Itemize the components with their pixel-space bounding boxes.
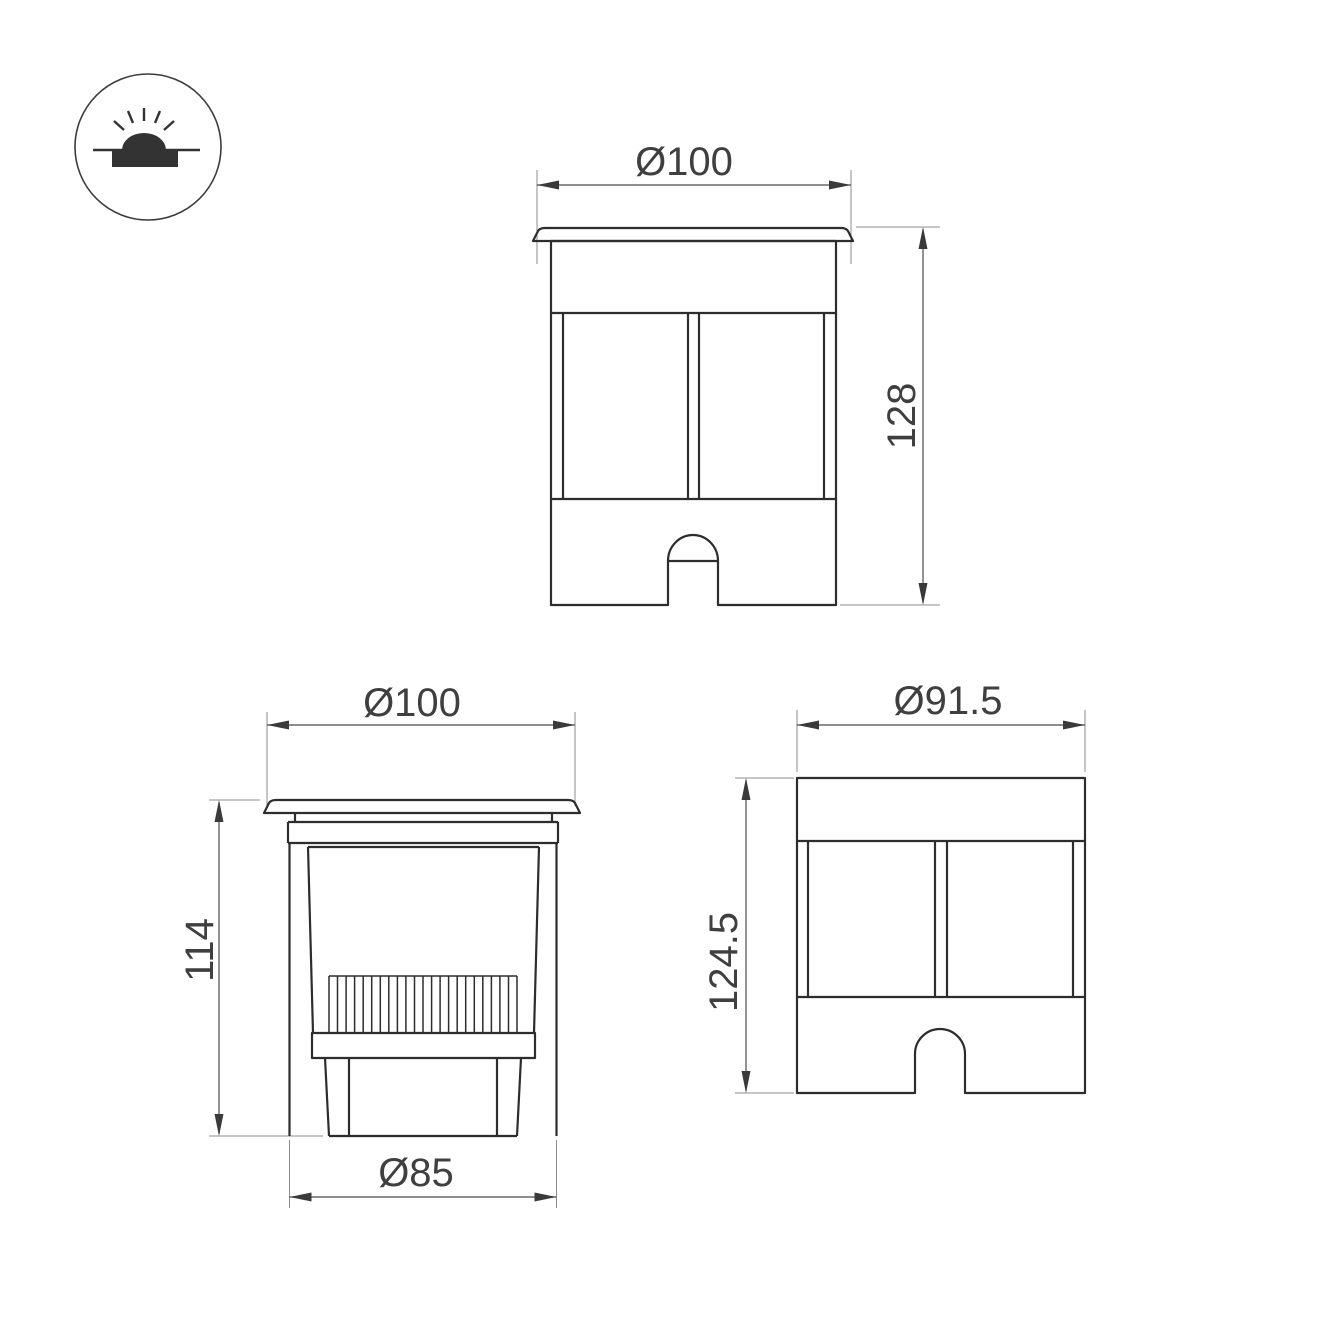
arrow-up — [215, 800, 224, 822]
rear-diameter-label: Ø91.5 — [894, 679, 1003, 723]
arrow-right — [553, 721, 575, 730]
lamp-dome — [122, 133, 166, 150]
arrow-left — [537, 181, 559, 190]
arrow-up — [742, 778, 751, 800]
arrow-left — [797, 721, 819, 730]
front-height-label: 128 — [880, 383, 924, 450]
recessed-ground-light-icon — [75, 74, 221, 220]
rear-window-side-lines — [808, 841, 1073, 997]
front-body — [551, 241, 836, 605]
arrow-down — [215, 1114, 224, 1136]
view-rear: Ø91.5 124.5 — [702, 679, 1085, 1093]
front-flange — [533, 228, 853, 241]
arrow-right — [535, 1193, 557, 1202]
section-collar — [288, 813, 558, 843]
arrow-up — [919, 227, 928, 249]
arrow-right — [1063, 721, 1085, 730]
front-window-side-lines — [563, 313, 824, 499]
rear-window-horizontals — [797, 841, 1085, 997]
section-height-extension-lines — [209, 800, 323, 1136]
arrow-left — [290, 1193, 312, 1202]
rear-body — [797, 778, 1085, 1093]
rear-center-divider — [935, 841, 947, 997]
heatsink-fins — [329, 976, 517, 1033]
arrow-down — [742, 1071, 751, 1093]
drawing-canvas: Ø100 128 Ø100 114 — [0, 0, 1331, 1331]
section-flange — [264, 800, 580, 813]
section-body-diameter-label: Ø85 — [378, 1151, 454, 1195]
arrow-left — [267, 721, 289, 730]
front-window-horizontals — [551, 313, 836, 499]
dimension-drawing: Ø100 128 Ø100 114 — [0, 0, 1331, 1331]
light-rays — [114, 108, 174, 130]
section-rear-housing — [325, 1058, 521, 1136]
rear-height-label: 124.5 — [702, 912, 746, 1012]
arrow-right — [829, 181, 851, 190]
section-top-diameter-label: Ø100 — [363, 681, 461, 725]
view-front: Ø100 128 — [533, 140, 940, 605]
view-section: Ø100 114 Ø85 — [178, 681, 580, 1208]
arrow-down — [919, 583, 928, 605]
front-center-divider — [688, 313, 699, 499]
buried-housing — [112, 150, 178, 167]
heatsink-base — [312, 1033, 535, 1058]
section-top-diameter-extension-lines — [267, 712, 575, 806]
front-diameter-label: Ø100 — [635, 140, 733, 184]
front-diameter-extension-lines — [537, 170, 851, 264]
section-height-label: 114 — [178, 918, 222, 982]
